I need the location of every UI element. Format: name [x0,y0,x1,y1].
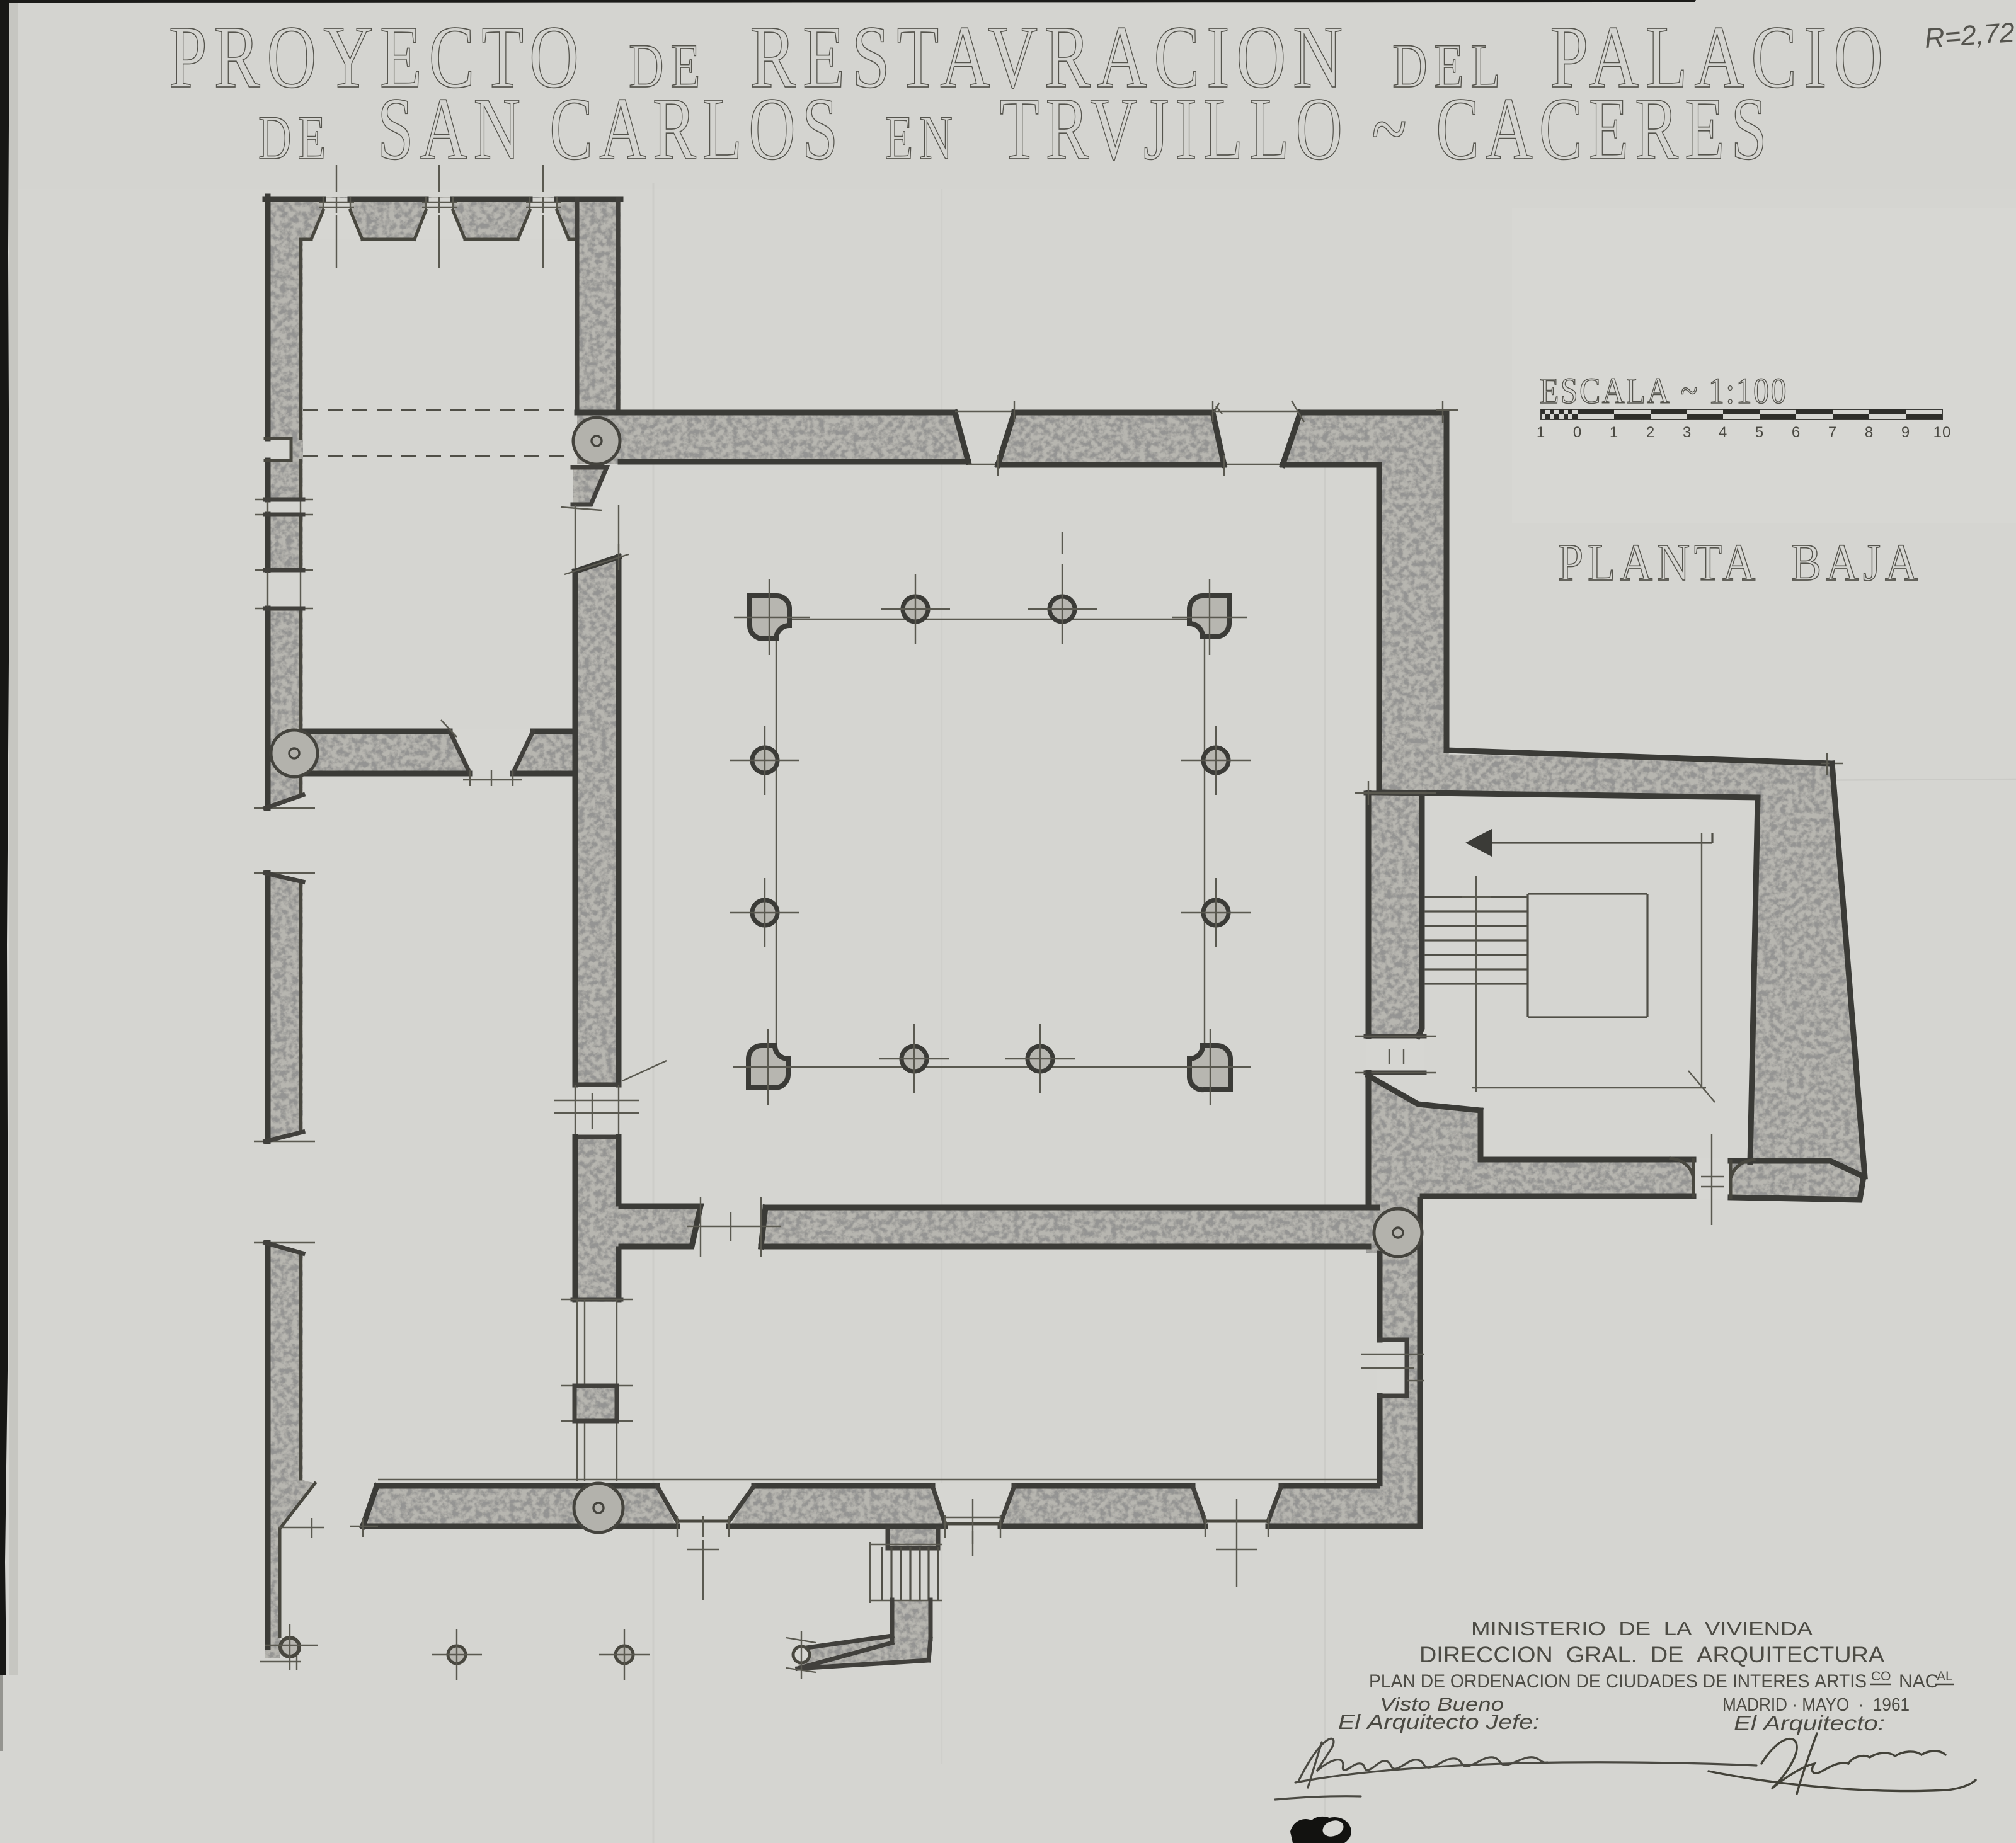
svg-text:3: 3 [1683,424,1692,441]
svg-text:4: 4 [1719,424,1727,441]
svg-text:5: 5 [1755,424,1764,441]
svg-text:DIRECCION GRAL. DE ARQUITEC: DIRECCION GRAL. DE ARQUITECTURA [1419,1643,1885,1667]
svg-text:7: 7 [1828,424,1837,441]
svg-text:AL: AL [1937,1669,1953,1684]
svg-text:8: 8 [1865,424,1874,441]
svg-text:NAC: NAC [1899,1671,1939,1692]
svg-text:MINISTERIO DE LA VIVIENDA: MINISTERIO DE LA VIVIENDA [1471,1618,1813,1640]
svg-text:PLANTA BAJA: PLANTA BAJA [1558,533,1922,592]
svg-text:El Arquitecto:: El Arquitecto: [1734,1711,1885,1735]
svg-text:CO: CO [1871,1669,1891,1684]
svg-text:El Arquitecto Jefe:: El Arquitecto Jefe: [1338,1710,1540,1733]
svg-text:ESCALA ~ 1:100: ESCALA ~ 1:100 [1540,370,1788,411]
svg-text:10: 10 [1933,424,1952,441]
svg-text:6: 6 [1792,424,1801,441]
svg-text:PLAN DE ORDENACION DE CIUDADES: PLAN DE ORDENACION DE CIUDADES DE INTERE… [1369,1671,1867,1692]
svg-text:1: 1 [1537,424,1545,441]
svg-text:1: 1 [1610,424,1618,441]
svg-text:DE SAN CARLOS EN TRVJILLO ~: DE SAN CARLOS EN TRVJILLO ~ CACERES [258,79,1773,178]
svg-text:2: 2 [1646,424,1655,441]
svg-text:R=2,72: R=2,72 [1923,17,2015,54]
svg-text:9: 9 [1901,424,1910,441]
svg-text:0: 0 [1573,424,1582,441]
